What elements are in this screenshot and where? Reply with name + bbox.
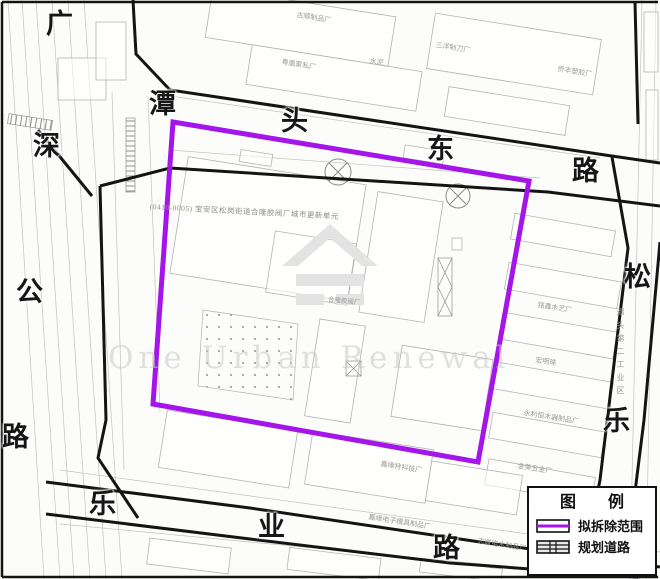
industrial-zone-label: 潭头第二工业区 <box>616 308 624 399</box>
road-label-tantou-east-char: 东 <box>427 136 454 163</box>
legend-item-planned-road: 规划道路 <box>536 540 655 554</box>
demolition-swatch-icon <box>536 519 570 533</box>
road-label-guangshen-char: 路 <box>2 424 29 451</box>
road-label-tantou-east-char: 潭 <box>149 91 176 118</box>
road-label-leye-char: 乐 <box>89 491 116 518</box>
road-label-songle-char: 乐 <box>603 408 630 435</box>
legend-box: 图 例 拟拆除范围 规划道路 <box>527 486 657 576</box>
planned-road-swatch-icon <box>536 540 570 554</box>
road-label-tantou-east-char: 路 <box>572 158 599 185</box>
road-label-tantou-east-char: 头 <box>281 108 308 135</box>
road-label-guangshen-char: 广 <box>46 11 73 38</box>
road-label-songle-char: 松 <box>624 264 651 291</box>
legend-item-demolition: 拟拆除范围 <box>536 519 655 533</box>
planning-map: 广 深 公 路 潭 头 东 路 松 乐 乐 业 路 (0410-0005) 宝安… <box>0 0 660 579</box>
legend-label-demolition: 拟拆除范围 <box>578 520 643 533</box>
road-label-leye-char: 路 <box>433 535 460 562</box>
road-label-leye-char: 业 <box>258 514 285 541</box>
road-label-guangshen-char: 公 <box>16 279 43 306</box>
legend-title: 图 例 <box>529 493 655 512</box>
road-label-guangshen-char: 深 <box>33 133 60 160</box>
watermark-text: One Urban Renewal <box>108 340 511 376</box>
legend-label-planned-road: 规划道路 <box>578 541 630 554</box>
